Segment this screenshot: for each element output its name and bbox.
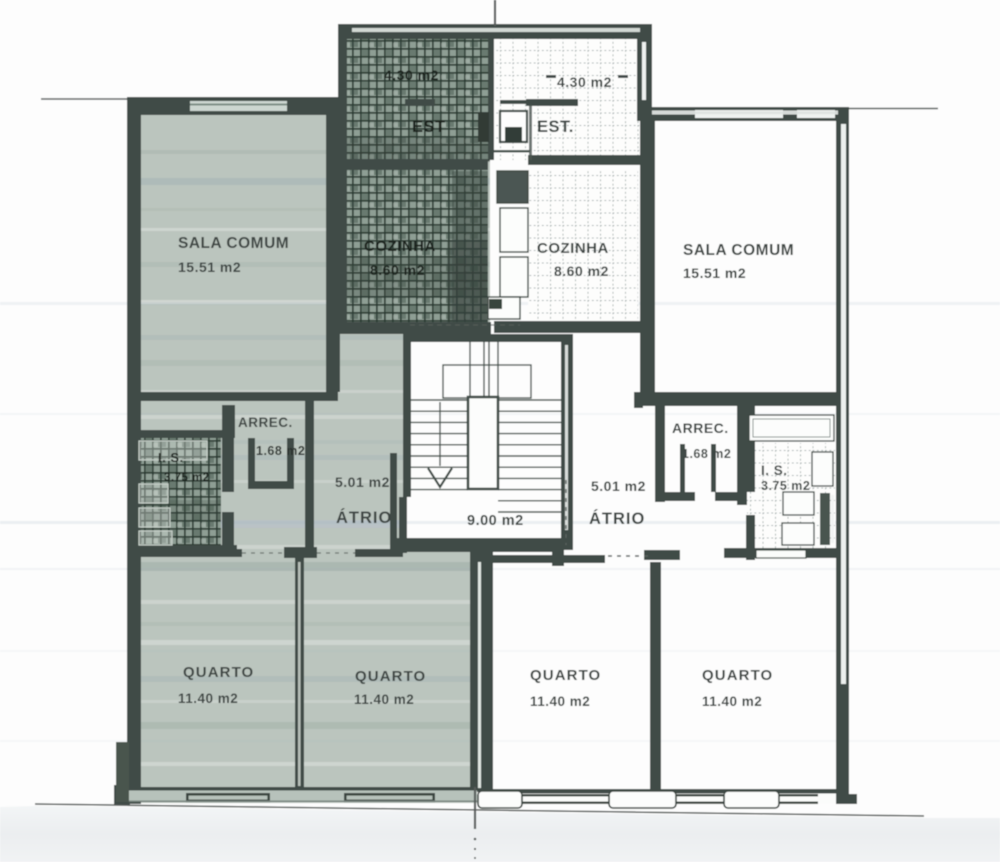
svg-text:I. S.: I. S.	[158, 450, 184, 465]
svg-text:1.68 m2: 1.68 m2	[682, 447, 731, 461]
svg-text:4.30 m2: 4.30 m2	[557, 74, 612, 90]
svg-text:EST.: EST.	[537, 118, 574, 136]
svg-text:EST: EST	[412, 118, 446, 136]
svg-text:ARREC.: ARREC.	[672, 420, 729, 436]
svg-text:QUARTO: QUARTO	[355, 668, 426, 685]
svg-text:ARREC.: ARREC.	[238, 415, 293, 430]
svg-text:1.68 m2: 1.68 m2	[256, 444, 305, 458]
svg-text:3.75 m2: 3.75 m2	[164, 472, 210, 484]
svg-text:15.51 m2: 15.51 m2	[683, 265, 746, 281]
svg-text:11.40 m2: 11.40 m2	[178, 691, 238, 706]
svg-text:11.40 m2: 11.40 m2	[702, 694, 762, 709]
svg-text:QUARTO: QUARTO	[702, 667, 773, 684]
svg-text:ÁTRIO: ÁTRIO	[336, 508, 392, 527]
svg-text:COZINHA: COZINHA	[364, 238, 436, 255]
svg-text:QUARTO: QUARTO	[183, 664, 254, 681]
svg-text:ÁTRIO: ÁTRIO	[589, 509, 645, 528]
svg-text:8.60 m2: 8.60 m2	[554, 263, 609, 279]
svg-text:SALA COMUM: SALA COMUM	[683, 242, 794, 259]
svg-text:15.51 m2: 15.51 m2	[178, 259, 241, 275]
svg-text:4.30 m2: 4.30 m2	[384, 67, 439, 83]
svg-text:SALA COMUM: SALA COMUM	[178, 235, 289, 252]
svg-text:9.00 m2: 9.00 m2	[467, 513, 524, 529]
svg-text:11.40 m2: 11.40 m2	[530, 694, 590, 709]
svg-text:5.01 m2: 5.01 m2	[591, 478, 646, 494]
svg-text:COZINHA: COZINHA	[537, 240, 609, 257]
svg-text:11.40 m2: 11.40 m2	[354, 692, 414, 707]
svg-text:8.60 m2: 8.60 m2	[370, 262, 425, 278]
svg-text:QUARTO: QUARTO	[530, 667, 601, 684]
svg-text:3.75 m2: 3.75 m2	[761, 479, 810, 493]
svg-text:5.01 m2: 5.01 m2	[335, 474, 390, 490]
svg-text:I. S.: I. S.	[761, 463, 788, 478]
